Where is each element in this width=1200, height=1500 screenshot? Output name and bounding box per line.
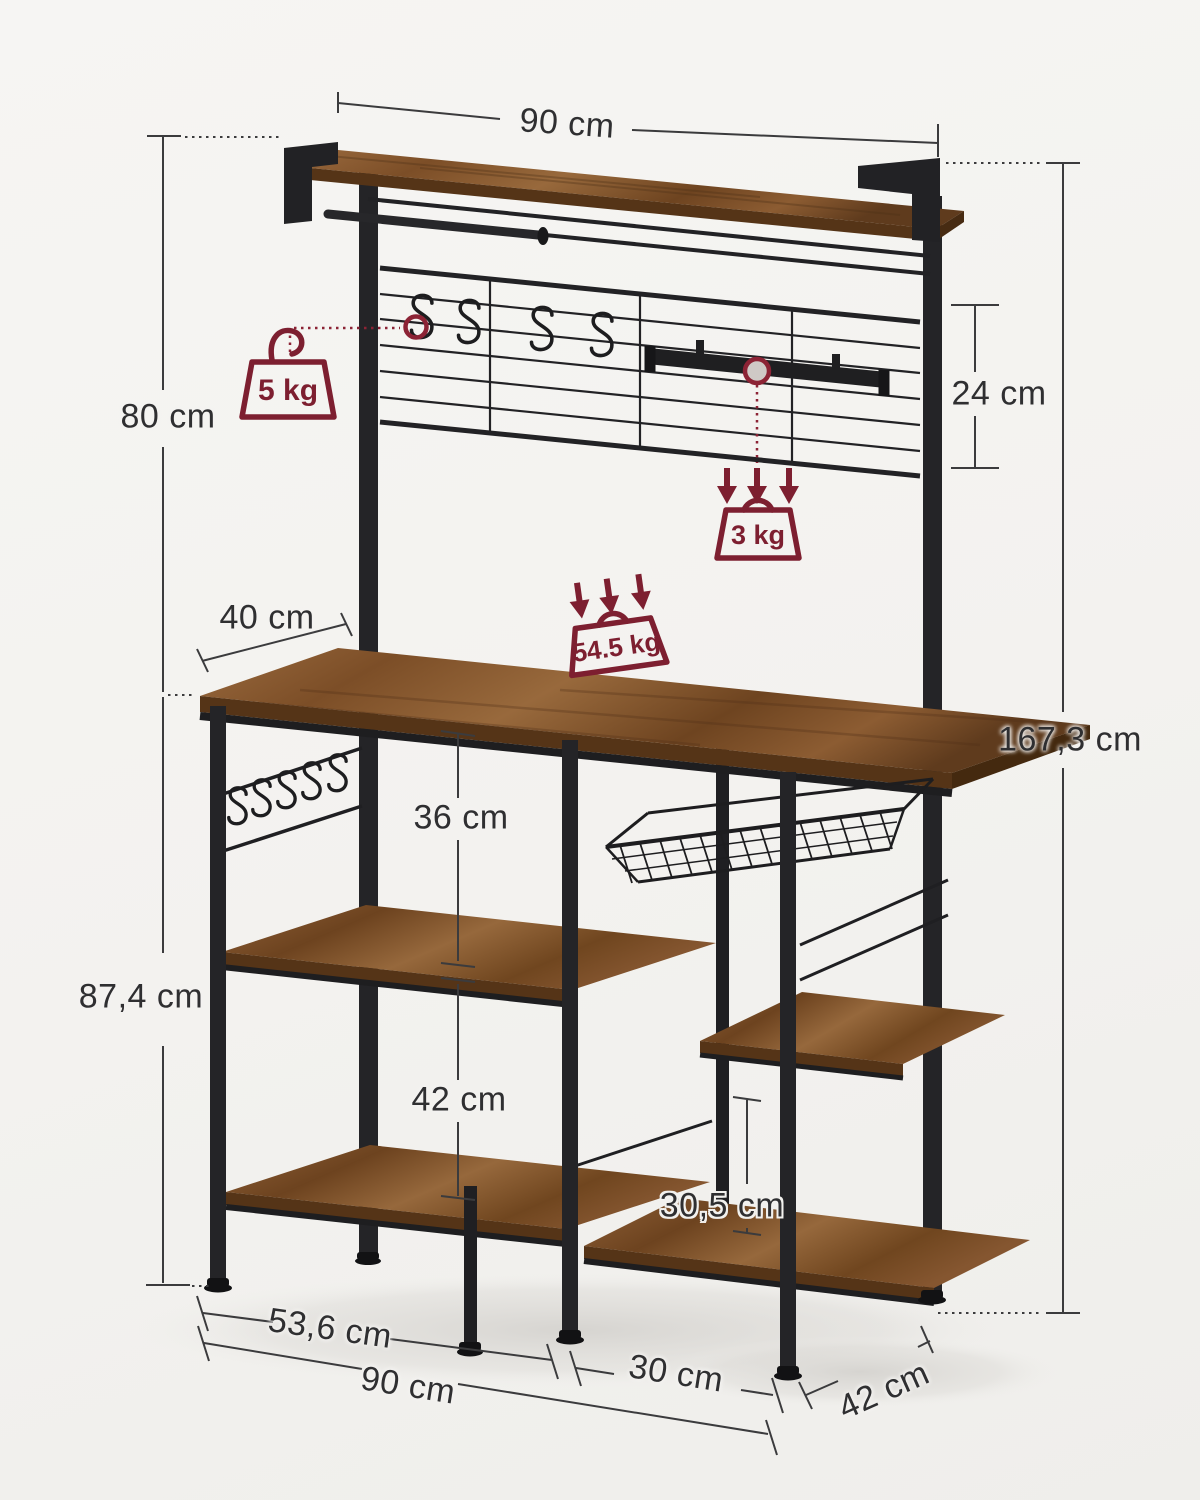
- right-middle-shelf: [700, 992, 1005, 1078]
- s-hook-icon: [303, 763, 320, 799]
- s-hook-icon: [253, 780, 270, 816]
- s-hook-icon: [532, 307, 552, 349]
- dim-total-height-label: 167,3 cm: [998, 721, 1142, 760]
- dim-hutch-height-label: 80 cm: [120, 398, 215, 437]
- dim-right-clearance-label: 30,5 cm: [660, 1187, 784, 1226]
- bakers-rack-illustration: [200, 142, 1090, 1381]
- s-hook-icon: [329, 755, 346, 791]
- hook-point-marker: [406, 317, 427, 338]
- s-hook-icon: [229, 788, 246, 824]
- s-hook-icon: [592, 313, 612, 355]
- countertop-load-label: 54.5 kg: [571, 626, 662, 668]
- rail-load-label: 3 kg: [731, 520, 785, 550]
- product-dimension-diagram: 5 kg 3 kg 54.5 kg 90 cm 80 cm 24 c: [0, 0, 1200, 1500]
- top-shelf: [284, 142, 964, 242]
- s-hook-icon: [459, 300, 479, 342]
- weight-capacity-54kg-icon: 54.5 kg: [559, 572, 667, 675]
- countertop: [200, 648, 1090, 793]
- dim-lower-clearance-label: 42 cm: [411, 1081, 506, 1120]
- dim-counter-clearance-label: 36 cm: [413, 799, 508, 838]
- s-hook-icon: [278, 772, 295, 808]
- wire-basket: [606, 779, 933, 883]
- side-hook-bars: [220, 748, 362, 852]
- dim-top-shelf-depth-label: 40 cm: [219, 599, 314, 638]
- dim-top-width-label: 90 cm: [518, 101, 616, 147]
- dim-top-width-line: [338, 92, 938, 157]
- dim-grid-height-label: 24 cm: [951, 375, 1046, 414]
- hook-load-label: 5 kg: [258, 374, 318, 407]
- rail-point-marker: [745, 359, 769, 383]
- dim-table-height-label: 87,4 cm: [79, 978, 203, 1017]
- middle-left-shelf: [222, 905, 716, 1005]
